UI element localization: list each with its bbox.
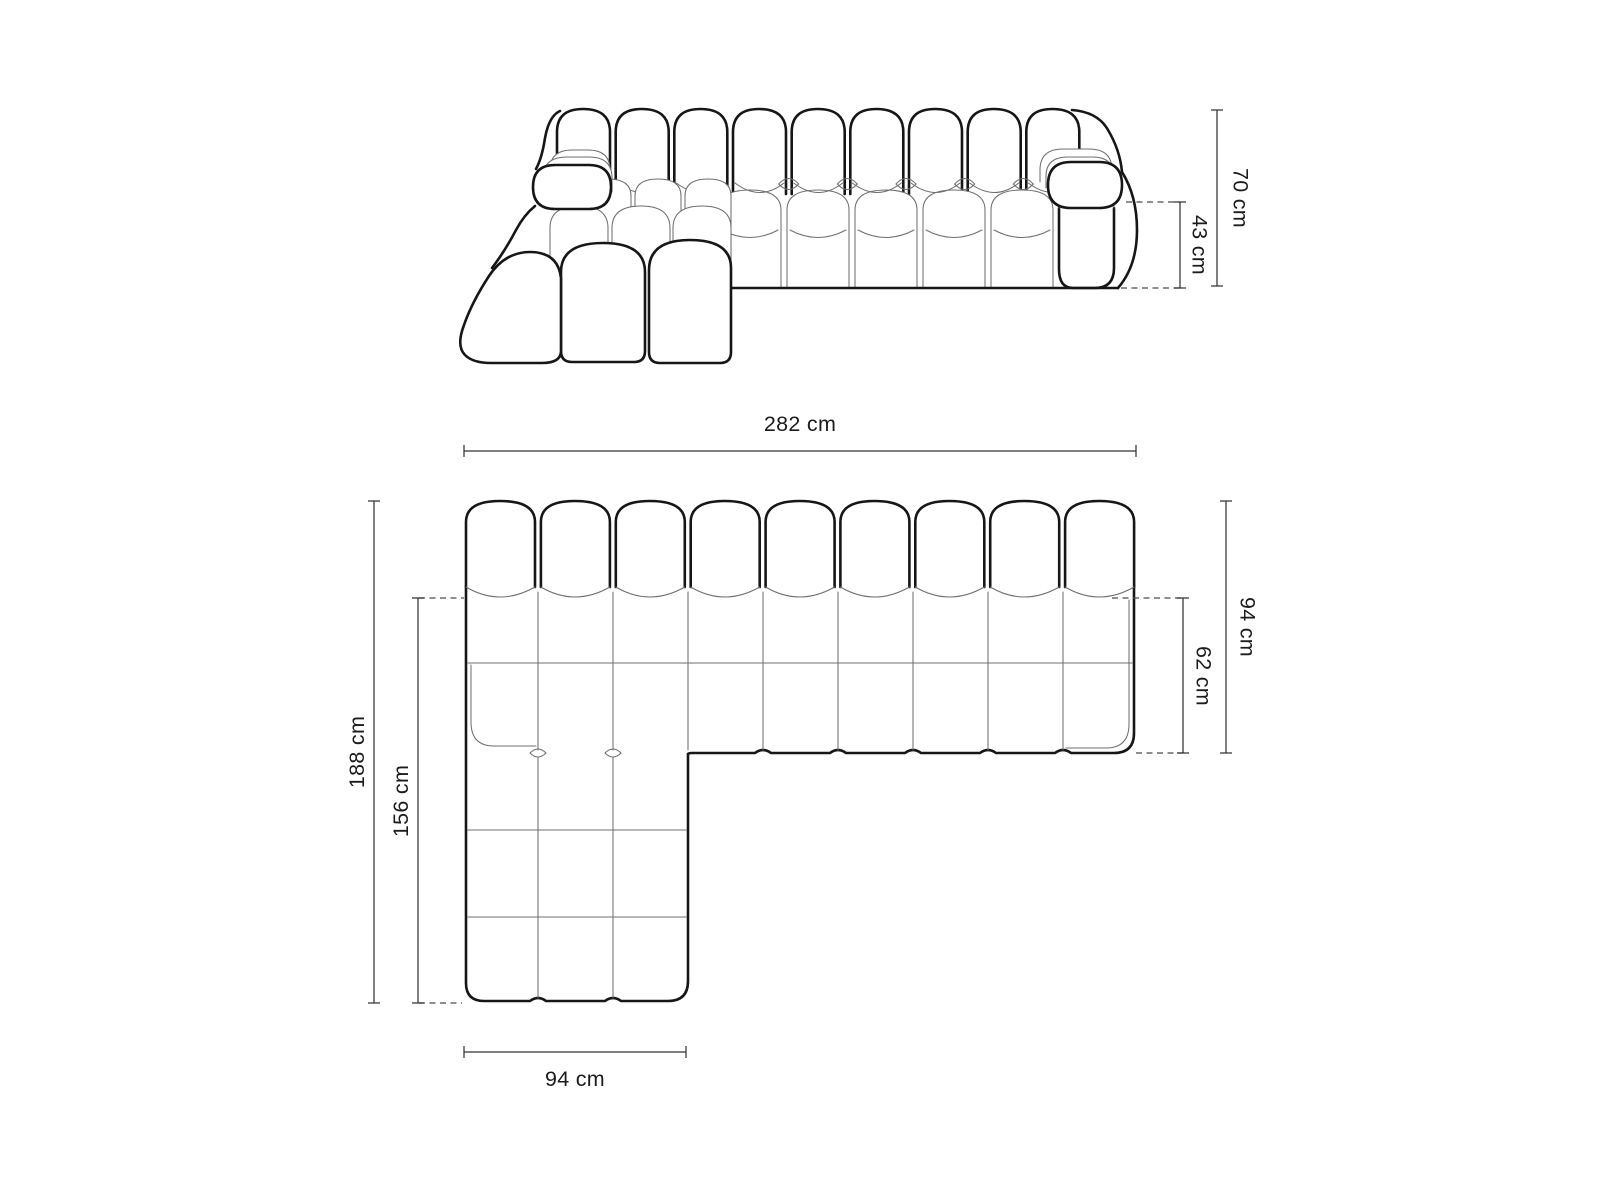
sofa-dimension-diagram: 43 cm 70 cm — [0, 0, 1600, 1200]
chaise-front-cushion — [649, 240, 731, 363]
crease — [915, 587, 984, 597]
plan-back-cushions — [466, 501, 1134, 597]
dim-chaise-total-length: 188 cm — [345, 501, 380, 1003]
dim-seat-depth: 62 cm — [1177, 598, 1215, 753]
back-cushion-plan — [915, 501, 984, 587]
crease — [691, 587, 760, 597]
front-back-cushions — [557, 109, 1079, 194]
back-cushion-plan — [1065, 501, 1134, 587]
seat-cushion — [923, 190, 985, 288]
back-cushion — [733, 109, 786, 194]
back-cushion — [909, 109, 962, 194]
front-elevation-view: 43 cm 70 cm — [460, 109, 1252, 363]
back-cushion — [850, 109, 903, 194]
armrest-pill — [533, 165, 611, 209]
dim-chaise-width: 94 cm — [464, 1046, 686, 1091]
seat-corner-cushion — [1059, 208, 1114, 288]
label-total-depth: 94 cm — [1235, 597, 1259, 657]
label-total-height: 70 cm — [1228, 168, 1252, 228]
label-chaise-width: 94 cm — [545, 1067, 605, 1091]
label-total-width: 282 cm — [764, 412, 836, 436]
back-cushion-plan — [541, 501, 610, 587]
back-cushion-plan — [990, 501, 1059, 587]
back-cushion-plan — [616, 501, 685, 587]
back-cushion — [792, 109, 845, 194]
dim-total-width: 282 cm — [464, 412, 1136, 457]
crease — [990, 587, 1059, 597]
label-chaise-inner-length: 156 cm — [389, 765, 413, 837]
front-dimensions: 43 cm 70 cm — [1121, 110, 1252, 288]
dim-total-depth: 94 cm — [1220, 501, 1259, 753]
diagram-canvas: 43 cm 70 cm — [0, 0, 1600, 1200]
crease — [616, 587, 685, 597]
plan-right-front-edge — [688, 586, 1134, 754]
seat-cushion — [855, 190, 917, 288]
label-chaise-total-length: 188 cm — [345, 716, 369, 788]
seat-cushion — [991, 190, 1053, 288]
crease — [1065, 587, 1134, 597]
seat-cushion — [787, 190, 849, 288]
plan-interior-lines — [468, 592, 1132, 998]
crease — [541, 587, 610, 597]
back-cushion — [968, 109, 1021, 194]
top-plan-view: 282 cm 188 cm 156 cm 94 c — [345, 412, 1260, 1091]
plan-left-edge — [466, 586, 688, 1001]
dim-total-height: 70 cm — [1211, 110, 1252, 286]
crease — [840, 587, 909, 597]
label-seat-height: 43 cm — [1187, 215, 1211, 275]
armrest-pill — [1048, 162, 1122, 208]
dim-seat-height: 43 cm — [1174, 202, 1211, 288]
back-cushion-plan — [466, 501, 535, 587]
crease — [466, 587, 535, 597]
back-cushion-plan — [766, 501, 835, 587]
back-cushion-plan — [840, 501, 909, 587]
back-cushion-plan — [691, 501, 760, 587]
chaise-front-cushion — [460, 252, 561, 363]
label-seat-depth: 62 cm — [1191, 646, 1215, 706]
chaise-front-cushion — [561, 243, 645, 362]
crease — [766, 587, 835, 597]
dim-chaise-inner-length: 156 cm — [389, 598, 424, 1003]
